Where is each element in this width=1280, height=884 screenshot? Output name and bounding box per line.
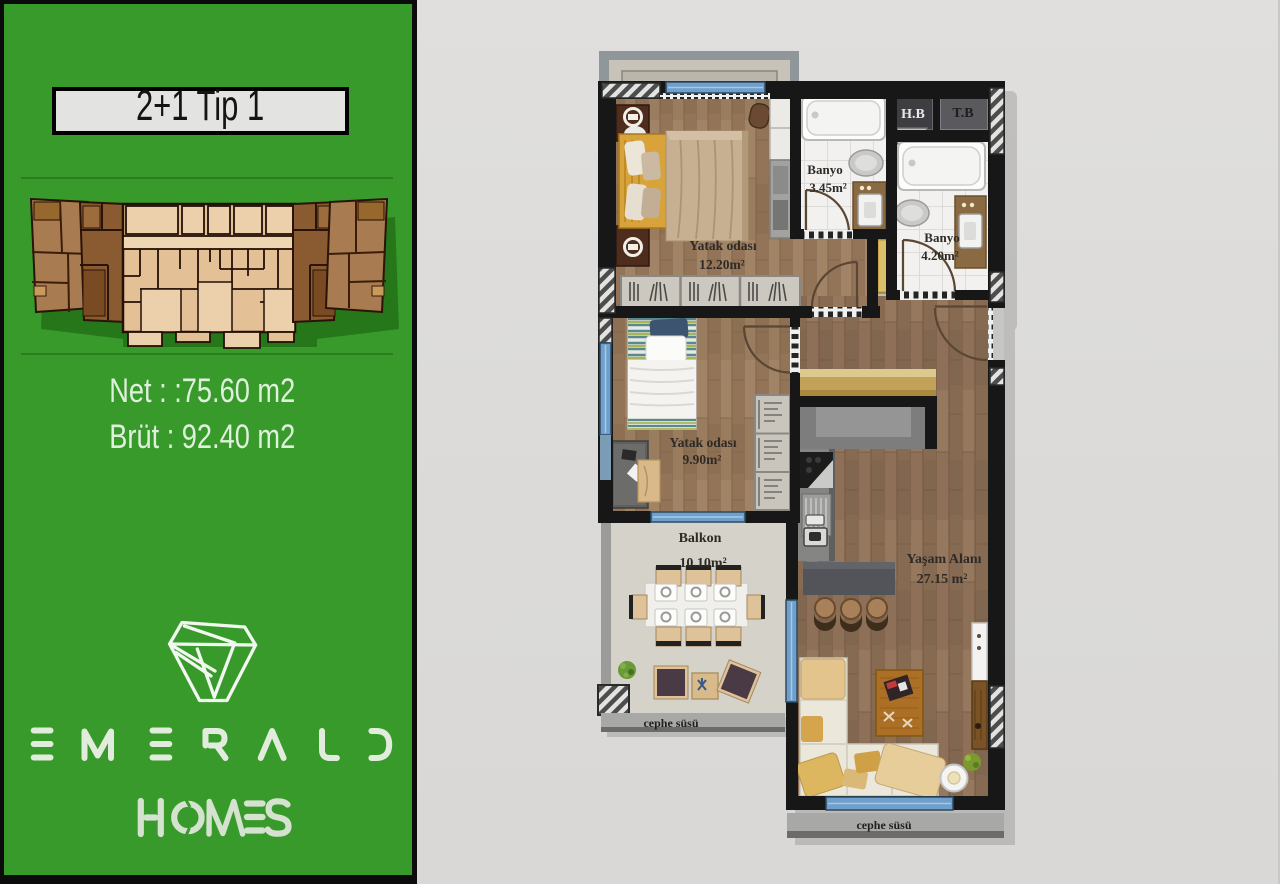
- svg-text:Banyo: Banyo: [924, 230, 959, 245]
- svg-text:cephe süsü: cephe süsü: [643, 716, 698, 730]
- svg-text:cephe süsü: cephe süsü: [856, 818, 911, 832]
- svg-text:27.15 m²: 27.15 m²: [917, 572, 968, 587]
- svg-text:H.B: H.B: [901, 107, 925, 122]
- svg-text:T.B: T.B: [952, 106, 973, 121]
- svg-text:12.20m²: 12.20m²: [699, 257, 745, 272]
- svg-text:3.45m²: 3.45m²: [809, 180, 847, 195]
- svg-text:Balkon: Balkon: [679, 531, 722, 546]
- svg-text:Yaşam Alanı: Yaşam Alanı: [906, 552, 981, 567]
- svg-text:Banyo: Banyo: [807, 162, 842, 177]
- svg-text:9.90m²: 9.90m²: [683, 452, 722, 467]
- svg-text:Yatak odası: Yatak odası: [669, 435, 736, 450]
- svg-text:10.10m²: 10.10m²: [679, 556, 726, 571]
- svg-text:4.20m²: 4.20m²: [921, 248, 959, 263]
- svg-text:Yatak odası: Yatak odası: [689, 238, 756, 253]
